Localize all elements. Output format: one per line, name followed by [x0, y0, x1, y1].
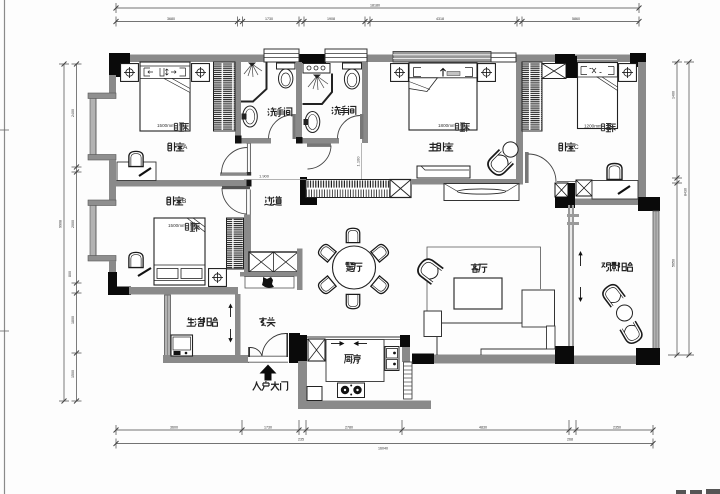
svg-text:2350: 2350: [613, 426, 621, 430]
svg-text:9908: 9908: [59, 220, 63, 228]
svg-text:1800: 1800: [71, 316, 75, 324]
svg-text:800: 800: [68, 271, 72, 277]
svg-text:C: C: [574, 144, 579, 151]
svg-text:1500mm: 1500mm: [168, 223, 186, 228]
svg-text:2400: 2400: [71, 109, 75, 117]
svg-text:5650: 5650: [672, 259, 676, 267]
svg-text:1.100: 1.100: [356, 156, 361, 167]
svg-text:3600: 3600: [170, 426, 178, 430]
svg-text:3680: 3680: [167, 17, 175, 21]
svg-text:1730: 1730: [265, 17, 273, 21]
svg-text:235: 235: [298, 438, 304, 442]
svg-text:2000: 2000: [71, 220, 75, 228]
svg-text:4318: 4318: [436, 17, 444, 21]
svg-text:268: 268: [567, 438, 573, 442]
svg-text:2780: 2780: [345, 426, 353, 430]
svg-text:1.900: 1.900: [259, 174, 270, 179]
svg-text:16040: 16040: [378, 447, 388, 451]
svg-text:1730: 1730: [264, 426, 272, 430]
svg-text:8430: 8430: [684, 188, 688, 196]
svg-text:1200mm: 1200mm: [584, 124, 602, 129]
svg-text:1800mm: 1800mm: [438, 123, 456, 128]
svg-text:1908: 1908: [327, 17, 335, 21]
svg-text:B: B: [182, 198, 186, 205]
svg-text:4830: 4830: [479, 426, 487, 430]
svg-text:A: A: [183, 144, 188, 151]
svg-text:1500mm: 1500mm: [157, 123, 175, 128]
svg-text:18180: 18180: [370, 4, 380, 8]
svg-text:5860: 5860: [572, 17, 580, 21]
svg-text:1400: 1400: [672, 91, 676, 99]
svg-text:1500: 1500: [71, 370, 75, 378]
